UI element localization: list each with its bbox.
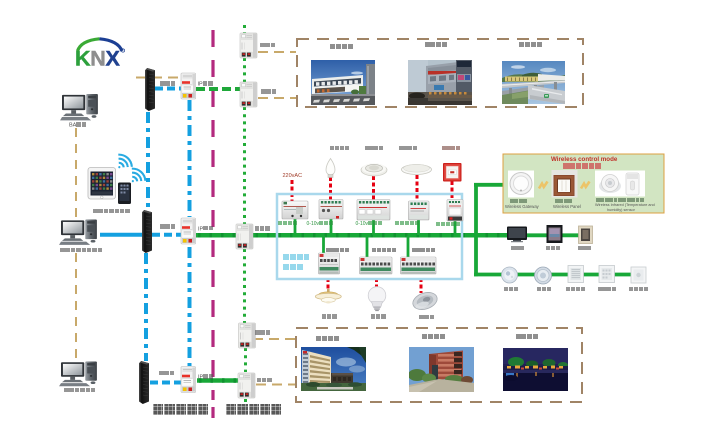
svg-text:KNX: KNX: [75, 47, 120, 71]
